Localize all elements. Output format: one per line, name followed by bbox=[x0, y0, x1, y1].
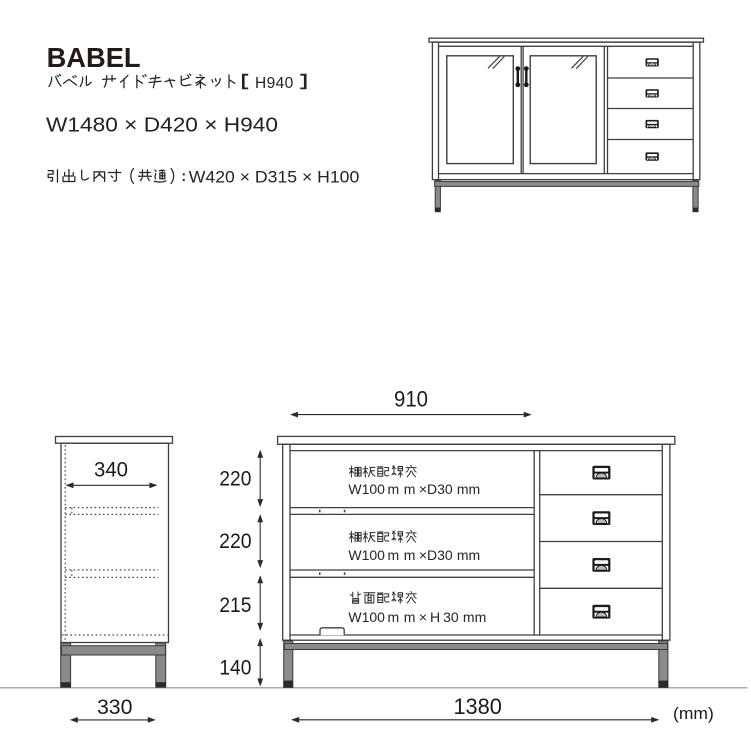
svg-text:H940: H940 bbox=[255, 75, 294, 92]
svg-text:W420 × D315 × H100: W420 × D315 × H100 bbox=[189, 168, 359, 187]
svg-text:W1480 × D420 × H940: W1480 × D420 × H940 bbox=[46, 115, 278, 137]
svg-text:340: 340 bbox=[94, 459, 128, 482]
svg-text:140: 140 bbox=[219, 657, 251, 680]
svg-text:BABEL: BABEL bbox=[47, 42, 141, 73]
svg-text:910: 910 bbox=[394, 387, 428, 412]
svg-text:330: 330 bbox=[97, 695, 133, 719]
svg-text:(mm): (mm) bbox=[673, 705, 714, 723]
svg-text:220: 220 bbox=[219, 530, 252, 553]
svg-text:1380: 1380 bbox=[453, 694, 502, 719]
svg-text:W100mm×D30mm: W100mm×D30mm bbox=[348, 481, 480, 497]
svg-text:220: 220 bbox=[219, 467, 251, 490]
svg-text:W100mm×D30mm: W100mm×D30mm bbox=[348, 547, 480, 563]
svg-text:215: 215 bbox=[219, 594, 251, 617]
